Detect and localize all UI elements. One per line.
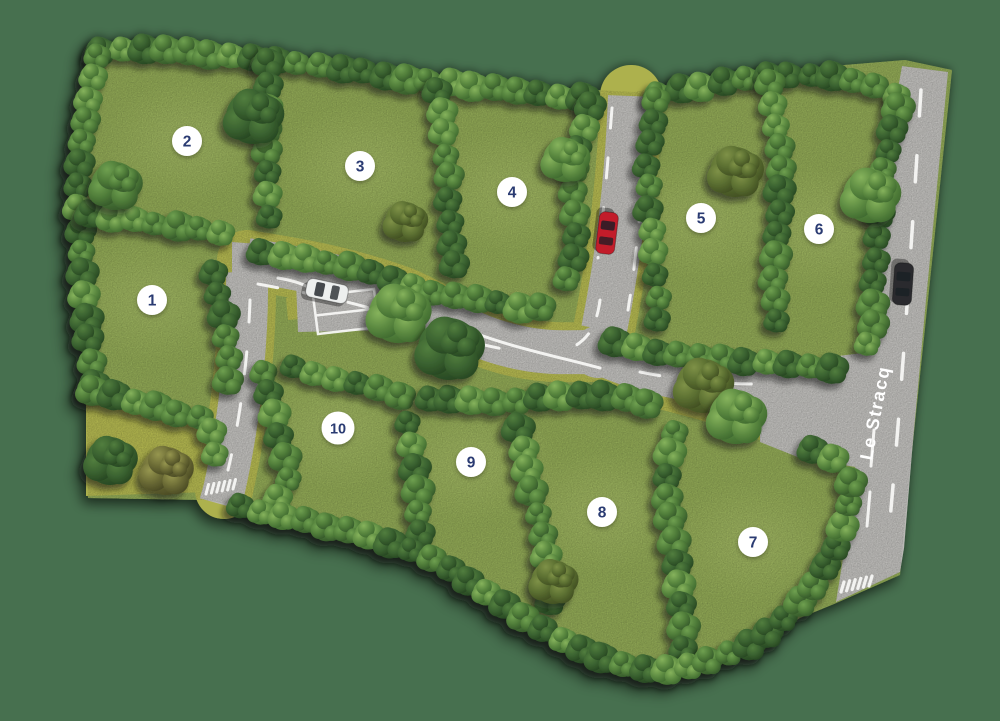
plot-marker-3[interactable]: 3 — [345, 151, 375, 181]
plot-number-label: 1 — [148, 293, 157, 310]
plot-marker-10[interactable]: 10 — [322, 412, 355, 445]
plot-number-label: 9 — [467, 455, 476, 472]
plot-marker-9[interactable]: 9 — [456, 447, 486, 477]
plot-number-label: 8 — [598, 505, 607, 522]
site-plan-canvas: Le Stracq 12345678910 — [0, 0, 1000, 721]
plot-marker-8[interactable]: 8 — [587, 497, 617, 527]
plot-number-label: 10 — [330, 422, 346, 438]
plot-number-label: 7 — [749, 535, 758, 552]
dark-driving-car-icon — [889, 258, 915, 305]
plot-marker-6[interactable]: 6 — [804, 214, 834, 244]
plot-marker-2[interactable]: 2 — [172, 126, 202, 156]
plot-number-label: 3 — [356, 159, 365, 176]
plot-marker-5[interactable]: 5 — [686, 203, 716, 233]
plot-marker-1[interactable]: 1 — [137, 285, 167, 315]
plot-number-label: 2 — [183, 134, 192, 151]
site-plan-svg: Le Stracq 12345678910 — [0, 0, 1000, 721]
plot-marker-4[interactable]: 4 — [497, 177, 527, 207]
plot-number-label: 4 — [508, 185, 517, 202]
plot-number-label: 5 — [697, 211, 706, 228]
plot-marker-7[interactable]: 7 — [738, 527, 768, 557]
plot-number-label: 6 — [815, 222, 824, 239]
